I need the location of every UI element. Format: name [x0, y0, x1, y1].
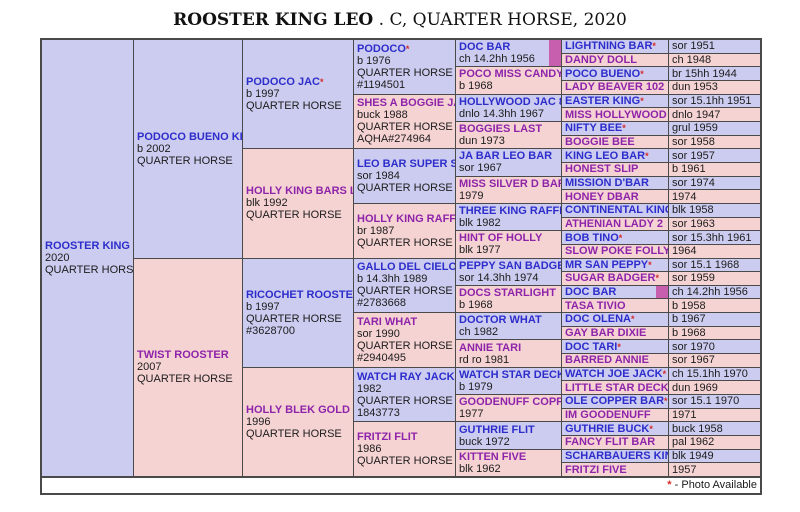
horse-detail: 1977	[459, 408, 559, 420]
horse-name-row: IM GOODENUFF	[565, 409, 666, 421]
pedigree-cell-gen6-date: blk 1958	[669, 204, 760, 217]
horse-date: ch 15.1hh 1970	[672, 368, 758, 380]
pedigree-cell-gen5: GUTHRIE FLITbuck 1972	[456, 422, 561, 448]
horse-name-row: ATHENIAN LADY 2	[565, 218, 666, 230]
footer-note-text: - Photo Available	[672, 479, 757, 491]
pedigree-cell-gen5: JA BAR LEO BARsor 1967	[456, 149, 561, 175]
horse-detail: 2020	[45, 252, 131, 264]
horse-name-row: MR SAN PEPPY*	[565, 259, 666, 271]
horse-name-link[interactable]: TARI WHAT	[357, 316, 417, 328]
horse-name-row: KITTEN FIVE	[459, 451, 559, 463]
pedigree-cell-gen5: GOODENUFF COPPER1977	[456, 395, 561, 421]
pedigree-cell-gen6-name: MR SAN PEPPY*	[562, 259, 668, 272]
horse-date: sor 1970	[672, 341, 758, 353]
horse-name-link[interactable]: DANDY DOLL	[565, 54, 637, 66]
pedigree-cell-gen4: TARI WHATsor 1990QUARTER HORSE#2940495	[354, 313, 455, 367]
pedigree-cell-gen6-date: 1974	[669, 190, 760, 203]
horse-name-link[interactable]: DOC TARI	[565, 341, 617, 353]
horse-name-row: THREE KING RAFFLES*	[459, 205, 559, 217]
horse-date: sor 15.1 1968	[672, 259, 758, 271]
horse-date: sor 1959	[672, 272, 758, 284]
photo-star: *	[406, 44, 410, 54]
horse-name-row: DOCS STARLIGHT	[459, 287, 559, 299]
horse-detail: QUARTER HORSE	[45, 264, 131, 276]
pedigree-cell-gen4: FRITZI FLIT1986QUARTER HORSE	[354, 422, 455, 476]
horse-detail: QUARTER HORSE	[246, 313, 351, 325]
horse-name-link[interactable]: KITTEN FIVE	[459, 451, 526, 463]
pedigree-cell-gen6-name: FANCY FLIT BAR	[562, 436, 668, 449]
photo-star: *	[640, 69, 644, 79]
horse-detail: dnlo 14.3hh 1967	[459, 108, 559, 120]
horse-name-link[interactable]: HOLLY KING RAFFLES	[357, 213, 455, 225]
horse-detail: b 1997	[246, 301, 351, 313]
horse-detail: #1194501	[357, 79, 453, 91]
page-title-name: ROOSTER KING LEO	[173, 10, 373, 30]
horse-name-link[interactable]: DOCS STARLIGHT	[459, 287, 556, 299]
horse-name-row: SHES A BOGGIE JAC	[357, 97, 453, 109]
pedigree-cell-gen6-name: WATCH JOE JACK*	[562, 368, 668, 381]
horse-date: b 1961	[672, 163, 758, 175]
horse-name-link[interactable]: THREE KING RAFFLES	[459, 205, 561, 217]
pedigree-cell-gen5: WATCH STAR DECKb 1979	[456, 368, 561, 394]
horse-detail: #2940495	[357, 352, 453, 364]
pedigree-cell-gen6-date: 1971	[669, 409, 760, 422]
horse-name-link[interactable]: LADY BEAVER 102	[565, 81, 664, 93]
horse-detail: buck 1972	[459, 436, 559, 448]
horse-detail: QUARTER HORSE	[137, 155, 240, 167]
pedigree-cell-gen3: HOLLY KING BARS LADYblk 1992QUARTER HORS…	[243, 149, 353, 257]
horse-name-link[interactable]: HINT OF HOLLY	[459, 232, 542, 244]
horse-name-row: POCO MISS CANDY	[459, 68, 559, 80]
pedigree-cell-gen6-name: GAY BAR DIXIE	[562, 327, 668, 340]
horse-detail: QUARTER HORSE	[357, 455, 453, 467]
horse-detail: blk 1992	[246, 197, 351, 209]
horse-name-link[interactable]: ATHENIAN LADY 2	[565, 218, 663, 230]
horse-date: sor 15.3hh 1961	[672, 232, 758, 244]
horse-name-link[interactable]: WATCH RAY JACK	[357, 371, 455, 383]
photo-star: *	[631, 314, 635, 324]
horse-name-link[interactable]: PEPPY SAN BADGER	[459, 260, 561, 272]
horse-name-row: GALLO DEL CIELO	[357, 261, 453, 273]
horse-detail: 1996	[246, 416, 351, 428]
horse-name-link[interactable]: BOGGIES LAST	[459, 123, 542, 135]
horse-name-link[interactable]: SLOW POKE FOLLY	[565, 245, 668, 257]
horse-name-link[interactable]: IM GOODENUFF	[565, 409, 651, 421]
horse-name-link[interactable]: PODOCO	[357, 43, 406, 55]
horse-name-link[interactable]: GUTHRIE BUCK	[565, 423, 649, 435]
horse-name-link[interactable]: KING LEO BAR	[565, 150, 645, 162]
horse-name-link[interactable]: HOLLYWOOD JAC 862	[459, 96, 561, 108]
horse-name-row: HOLLYWOOD JAC 862*	[459, 96, 559, 108]
horse-detail: QUARTER HORSE	[246, 209, 351, 221]
pedigree-grid: ROOSTER KING LEO2020QUARTER HORSEPODOCO …	[40, 38, 762, 478]
horse-name-link[interactable]: HOLLY BLEK GOLD	[246, 404, 350, 416]
photo-star: *	[652, 41, 656, 51]
horse-name-link[interactable]: TWIST ROOSTER	[137, 349, 229, 361]
pedigree-cell-gen5: HOLLYWOOD JAC 862*dnlo 14.3hh 1967	[456, 95, 561, 121]
horse-date: sor 1957	[672, 150, 758, 162]
horse-detail: blk 1977	[459, 244, 559, 256]
pedigree-cell-gen6-date: b 1961	[669, 163, 760, 176]
horse-name-row: RICOCHET ROOSTER	[246, 289, 351, 301]
horse-name-link[interactable]: OLE COPPER BAR	[565, 395, 664, 407]
horse-name-row: PODOCO BUENO KING*	[137, 131, 240, 143]
horse-name-link[interactable]: WATCH STAR DECK	[459, 369, 561, 381]
horse-name-link[interactable]: DOCTOR WHAT	[459, 314, 542, 326]
horse-name-link[interactable]: WATCH JOE JACK	[565, 368, 663, 380]
horse-detail: ch 1982	[459, 326, 559, 338]
horse-name-row: DOC BAR	[459, 41, 559, 53]
horse-name-link[interactable]: MISS SILVER D BAR	[459, 178, 561, 190]
pedigree-cell-gen6-date: 1964	[669, 245, 760, 258]
horse-name-row: WATCH JOE JACK*	[565, 368, 666, 380]
photo-star: *	[663, 369, 667, 379]
horse-detail: 1843773	[357, 407, 453, 419]
horse-name-row: KING LEO BAR*	[565, 150, 666, 162]
pedigree-cell-gen6-name: POCO BUENO*	[562, 67, 668, 80]
pedigree-cell-gen6-name: FRITZI FIVE	[562, 463, 668, 476]
horse-name-row: LEO BAR SUPER STAR	[357, 158, 453, 170]
pedigree-cell-gen3: RICOCHET ROOSTERb 1997QUARTER HORSE#3628…	[243, 259, 353, 367]
horse-name-link[interactable]: GALLO DEL CIELO	[357, 261, 455, 273]
horse-name-row: DANDY DOLL	[565, 54, 666, 66]
horse-name-row: DOCTOR WHAT	[459, 314, 559, 326]
pedigree-cell-gen6-name: TASA TIVIO	[562, 299, 668, 312]
pedigree-cell-gen6-date: ch 14.2hh 1956	[669, 286, 760, 299]
horse-name-link[interactable]: MISS HOLLYWOOD	[565, 109, 667, 121]
horse-name-link[interactable]: HOLLY KING BARS LADY	[246, 185, 353, 197]
pedigree-cell-gen6-date: sor 15.1 1968	[669, 259, 760, 272]
horse-detail: QUARTER HORSE	[357, 237, 453, 249]
horse-name-row: LIGHTNING BAR*	[565, 40, 666, 52]
horse-name-row: TWIST ROOSTER	[137, 349, 240, 361]
horse-detail: rd ro 1981	[459, 354, 559, 366]
horse-date: 1971	[672, 409, 758, 421]
horse-name-link[interactable]: TASA TIVIO	[565, 300, 626, 312]
pedigree-cell-gen6-name: OLE COPPER BAR*	[562, 395, 668, 408]
horse-detail: QUARTER HORSE	[357, 67, 453, 79]
horse-name-row: FRITZI FLIT	[357, 431, 453, 443]
horse-date: sor 1963	[672, 218, 758, 230]
pedigree-cell-gen2: TWIST ROOSTER2007QUARTER HORSE	[134, 259, 242, 477]
horse-name-link[interactable]: GAY BAR DIXIE	[565, 327, 646, 339]
horse-date: sor 15.1 1970	[672, 395, 758, 407]
horse-name-link[interactable]: BOB TINO	[565, 232, 619, 244]
horse-name-link[interactable]: EASTER KING	[565, 95, 640, 107]
horse-date: b 1968	[672, 327, 758, 339]
pedigree-cell-gen6-date: sor 1958	[669, 136, 760, 149]
pedigree-table: ROOSTER KING LEO2020QUARTER HORSEPODOCO …	[40, 38, 762, 495]
horse-name-link[interactable]: JA BAR LEO BAR	[459, 150, 552, 162]
horse-name-row: TASA TIVIO	[565, 300, 666, 312]
horse-name-row: GUTHRIE BUCK*	[565, 423, 666, 435]
horse-detail: QUARTER HORSE	[137, 373, 240, 385]
pedigree-cell-gen6-name: BARRED ANNIE	[562, 354, 668, 367]
horse-detail: sor 14.3hh 1974	[459, 272, 559, 284]
pedigree-cell-gen6-name: NIFTY BEE*	[562, 122, 668, 135]
pedigree-cell-gen6-date: ch 15.1hh 1970	[669, 368, 760, 381]
pedigree-cell-gen5: MISS SILVER D BAR1979	[456, 177, 561, 203]
horse-name-link[interactable]: GUTHRIE FLIT	[459, 424, 535, 436]
horse-name-row: DOC OLENA*	[565, 313, 666, 325]
pedigree-cell-gen4: LEO BAR SUPER STARsor 1984QUARTER HORSE	[354, 149, 455, 203]
horse-name-link[interactable]: MISSION D'BAR	[565, 177, 649, 189]
horse-detail: b 2002	[137, 143, 240, 155]
horse-name-row: JA BAR LEO BAR	[459, 150, 559, 162]
pedigree-cell-gen6-date: ch 1948	[669, 54, 760, 67]
photo-star: *	[664, 396, 668, 406]
horse-name-link[interactable]: HONEY DBAR	[565, 191, 639, 203]
horse-detail: 1979	[459, 190, 559, 202]
horse-detail: buck 1988	[357, 109, 453, 121]
horse-name-link[interactable]: DOC BAR	[565, 286, 616, 298]
horse-name-link[interactable]: ANNIE TARI	[459, 342, 521, 354]
horse-name-link[interactable]: PODOCO JAC	[246, 76, 320, 88]
horse-name-row: DOC TARI*	[565, 341, 666, 353]
horse-name-link[interactable]: SHES A BOGGIE JAC	[357, 97, 455, 109]
pedigree-cell-gen4: WATCH RAY JACK1982QUARTER HORSE1843773	[354, 368, 455, 422]
pedigree-cell-gen6-name: MISS HOLLYWOOD	[562, 108, 668, 121]
horse-name-row: PODOCO JAC*	[246, 76, 351, 88]
horse-name-link[interactable]: MR SAN PEPPY	[565, 259, 648, 271]
horse-detail: QUARTER HORSE	[357, 395, 453, 407]
horse-name-row: PEPPY SAN BADGER*	[459, 260, 559, 272]
horse-date: dun 1953	[672, 81, 758, 93]
horse-name-link[interactable]: PODOCO BUENO KING	[137, 131, 242, 143]
pedigree-cell-gen5: DOC BARch 14.2hh 1956	[456, 40, 561, 66]
horse-detail: ch 14.2hh 1956	[459, 53, 559, 65]
horse-name-row: WATCH STAR DECK	[459, 369, 559, 381]
horse-date: blk 1949	[672, 450, 758, 462]
pedigree-cell-gen4: SHES A BOGGIE JACbuck 1988QUARTER HORSEA…	[354, 95, 455, 149]
pedigree-cell-gen6-date: b 1958	[669, 299, 760, 312]
pedigree-cell-gen5: POCO MISS CANDYb 1968	[456, 67, 561, 93]
horse-name-link[interactable]: FRITZI FIVE	[565, 464, 627, 476]
pedigree-cell-gen6-name: DOC TARI*	[562, 340, 668, 353]
horse-name-link[interactable]: LIGHTNING BAR	[565, 40, 652, 52]
horse-name-row: GUTHRIE FLIT	[459, 424, 559, 436]
pedigree-cell-gen6-date: pal 1962	[669, 436, 760, 449]
pedigree-cell-gen6-name: SCHARBAUERS KING	[562, 450, 668, 463]
horse-name-link[interactable]: DOC OLENA	[565, 313, 631, 325]
pedigree-cell-gen6-date: sor 1951	[669, 40, 760, 53]
pedigree-cell-gen6-date: sor 1959	[669, 272, 760, 285]
horse-name-row: CONTINENTAL KING*	[565, 204, 666, 216]
pedigree-cell-gen6-name: KING LEO BAR*	[562, 149, 668, 162]
horse-name-link[interactable]: DOC BAR	[459, 41, 510, 53]
horse-name-row: SCHARBAUERS KING	[565, 450, 666, 462]
horse-date: sor 1951	[672, 40, 758, 52]
photo-star: *	[655, 273, 659, 283]
horse-name-row: ANNIE TARI	[459, 342, 559, 354]
horse-date: sor 1974	[672, 177, 758, 189]
pedigree-cell-gen2: PODOCO BUENO KING*b 2002QUARTER HORSE	[134, 40, 242, 258]
horse-detail: b 1976	[357, 55, 453, 67]
pedigree-cell-gen1: ROOSTER KING LEO2020QUARTER HORSE	[42, 40, 133, 476]
photo-star: *	[648, 260, 652, 270]
horse-name-link[interactable]: SCHARBAUERS KING	[565, 450, 668, 462]
pedigree-cell-gen3: PODOCO JAC*b 1997QUARTER HORSE	[243, 40, 353, 148]
horse-name-row: WATCH RAY JACK	[357, 371, 453, 383]
pedigree-cell-gen3: HOLLY BLEK GOLD1996QUARTER HORSE	[243, 368, 353, 476]
page-title: ROOSTER KING LEO . C, QUARTER HORSE, 202…	[0, 10, 800, 30]
horse-name-row: SUGAR BADGER*	[565, 272, 666, 284]
horse-name-row: PODOCO*	[357, 43, 453, 55]
horse-name-row: BARRED ANNIE	[565, 354, 666, 366]
horse-name-row: HINT OF HOLLY	[459, 232, 559, 244]
horse-name-link[interactable]: NIFTY BEE	[565, 122, 622, 134]
horse-name-row: BOGGIE BEE	[565, 136, 666, 148]
pedigree-cell-gen6-name: SLOW POKE FOLLY	[562, 245, 668, 258]
horse-name-link[interactable]: BOGGIE BEE	[565, 136, 635, 148]
pedigree-cell-gen6-name: BOB TINO*	[562, 231, 668, 244]
photo-star: *	[619, 233, 623, 243]
pedigree-cell-gen4: HOLLY KING RAFFLESbr 1987QUARTER HORSE	[354, 204, 455, 258]
pedigree-cell-gen6-date: br 15hh 1944	[669, 67, 760, 80]
pedigree-cell-gen6-date: b 1967	[669, 313, 760, 326]
photo-star: *	[622, 123, 626, 133]
pedigree-cell-gen4: GALLO DEL CIELOb 14.3hh 1989QUARTER HORS…	[354, 259, 455, 313]
pedigree-cell-gen5: ANNIE TARIrd ro 1981	[456, 340, 561, 366]
horse-name-link[interactable]: FRITZI FLIT	[357, 431, 417, 443]
photo-indicator	[656, 286, 668, 299]
footer-note: * - Photo Available	[40, 478, 762, 495]
horse-name-link[interactable]: SUGAR BADGER	[565, 272, 655, 284]
pedigree-cell-gen6-date: b 1968	[669, 327, 760, 340]
horse-name-row: HOLLY KING BARS LADY	[246, 185, 351, 197]
horse-name-row: SLOW POKE FOLLY	[565, 245, 666, 257]
pedigree-cell-gen5: BOGGIES LASTdun 1973	[456, 122, 561, 148]
pedigree-cell-gen6-date: dun 1969	[669, 381, 760, 394]
horse-detail: 2007	[137, 361, 240, 373]
pedigree-cell-gen5: DOCTOR WHATch 1982	[456, 313, 561, 339]
pedigree-cell-gen6-date: grul 1959	[669, 122, 760, 135]
horse-date: buck 1958	[672, 423, 758, 435]
horse-detail: b 1979	[459, 381, 559, 393]
horse-detail: QUARTER HORSE	[357, 340, 453, 352]
horse-detail: blk 1962	[459, 463, 559, 475]
horse-name-link[interactable]: LEO BAR SUPER STAR	[357, 158, 455, 170]
pedigree-cell-gen5: HINT OF HOLLYblk 1977	[456, 231, 561, 257]
pedigree-cell-gen6-date: sor 1974	[669, 177, 760, 190]
pedigree-cell-gen6-name: DOC BAR	[562, 286, 668, 299]
pedigree-cell-gen6-date: blk 1949	[669, 450, 760, 463]
horse-name-link[interactable]: ROOSTER KING LEO	[45, 240, 133, 252]
photo-star: *	[320, 77, 324, 87]
pedigree-cell-gen6-name: SUGAR BADGER*	[562, 272, 668, 285]
pedigree-cell-gen5: THREE KING RAFFLES*blk 1982	[456, 204, 561, 230]
horse-detail: sor 1990	[357, 328, 453, 340]
horse-date: b 1958	[672, 300, 758, 312]
horse-name-row: FRITZI FIVE	[565, 464, 666, 476]
horse-detail: AQHA#274964	[357, 133, 453, 145]
horse-detail: QUARTER HORSE	[246, 428, 351, 440]
horse-name-row: DOC BAR	[565, 286, 666, 298]
horse-name-row: HOLLY KING RAFFLES	[357, 213, 453, 225]
pedigree-cell-gen6-date: sor 1970	[669, 340, 760, 353]
horse-name-row: BOGGIES LAST	[459, 123, 559, 135]
horse-name-link[interactable]: FANCY FLIT BAR	[565, 436, 655, 448]
horse-name-row: MISS SILVER D BAR	[459, 178, 559, 190]
photo-star: *	[640, 96, 644, 106]
horse-name-row: HOLLY BLEK GOLD	[246, 404, 351, 416]
pedigree-cell-gen6-name: BOGGIE BEE	[562, 136, 668, 149]
pedigree-cell-gen6-name: LIGHTNING BAR*	[562, 40, 668, 53]
horse-name-link[interactable]: BARRED ANNIE	[565, 354, 649, 366]
horse-date: b 1967	[672, 313, 758, 325]
horse-name-link[interactable]: GOODENUFF COPPER	[459, 396, 561, 408]
pedigree-cell-gen6-name: GUTHRIE BUCK*	[562, 422, 668, 435]
horse-name-link[interactable]: POCO MISS CANDY	[459, 68, 561, 80]
horse-detail: QUARTER HORSE	[246, 100, 351, 112]
page-title-suffix: . C, QUARTER HORSE, 2020	[373, 10, 627, 30]
horse-date: sor 1958	[672, 136, 758, 148]
pedigree-cell-gen6-name: CONTINENTAL KING*	[562, 204, 668, 217]
horse-name-row: OLE COPPER BAR*	[565, 395, 666, 407]
pedigree-cell-gen6-date: sor 15.1 1970	[669, 395, 760, 408]
horse-name-link[interactable]: HONEST SLIP	[565, 163, 638, 175]
horse-name-row: MISS HOLLYWOOD	[565, 109, 666, 121]
horse-date: blk 1958	[672, 204, 758, 216]
horse-name-row: GOODENUFF COPPER	[459, 396, 559, 408]
pedigree-cell-gen6-date: dnlo 1947	[669, 108, 760, 121]
pedigree-cell-gen4: PODOCO*b 1976QUARTER HORSE#1194501	[354, 40, 455, 94]
pedigree-cell-gen6-name: ATHENIAN LADY 2	[562, 218, 668, 231]
horse-date: ch 1948	[672, 54, 758, 66]
horse-detail: QUARTER HORSE	[357, 285, 453, 297]
pedigree-cell-gen6-name: DANDY DOLL	[562, 54, 668, 67]
horse-name-row: FANCY FLIT BAR	[565, 436, 666, 448]
horse-name-link[interactable]: LITTLE STAR DECK	[565, 382, 668, 394]
horse-detail: dun 1973	[459, 135, 559, 147]
horse-name-row: GAY BAR DIXIE	[565, 327, 666, 339]
horse-detail: #2783668	[357, 297, 453, 309]
pedigree-cell-gen5: PEPPY SAN BADGER*sor 14.3hh 1974	[456, 259, 561, 285]
pedigree-cell-gen6-name: HONEST SLIP	[562, 163, 668, 176]
horse-detail: b 14.3hh 1989	[357, 273, 453, 285]
horse-name-row: LITTLE STAR DECK	[565, 382, 666, 394]
pedigree-cell-gen5: DOCS STARLIGHTb 1968	[456, 286, 561, 312]
horse-date: grul 1959	[672, 122, 758, 134]
photo-star: *	[645, 151, 649, 161]
horse-name-row: POCO BUENO*	[565, 68, 666, 80]
pedigree-cell-gen6-name: HONEY DBAR	[562, 190, 668, 203]
photo-star: *	[617, 342, 621, 352]
pedigree-cell-gen6-date: 1957	[669, 463, 760, 476]
horse-date: sor 15.1hh 1951	[672, 95, 758, 107]
horse-name-row: TARI WHAT	[357, 316, 453, 328]
horse-name-link[interactable]: POCO BUENO	[565, 68, 640, 80]
pedigree-cell-gen6-date: sor 1957	[669, 149, 760, 162]
horse-date: pal 1962	[672, 436, 758, 448]
horse-detail: br 1987	[357, 225, 453, 237]
horse-name-link[interactable]: RICOCHET ROOSTER	[246, 289, 353, 301]
horse-name-row: HONEST SLIP	[565, 163, 666, 175]
photo-star: *	[649, 424, 653, 434]
horse-date: ch 14.2hh 1956	[672, 286, 758, 298]
horse-name-link[interactable]: CONTINENTAL KING	[565, 204, 668, 216]
pedigree-cell-gen6-name: LADY BEAVER 102	[562, 81, 668, 94]
pedigree-cell-gen6-date: sor 1963	[669, 218, 760, 231]
pedigree-cell-gen6-date: sor 15.3hh 1961	[669, 231, 760, 244]
horse-detail: sor 1967	[459, 162, 559, 174]
horse-detail: 1986	[357, 443, 453, 455]
horse-detail: sor 1984	[357, 170, 453, 182]
horse-detail: b 1997	[246, 88, 351, 100]
horse-name-row: ROOSTER KING LEO	[45, 240, 131, 252]
horse-detail: b 1968	[459, 80, 559, 92]
pedigree-cell-gen6-date: sor 1967	[669, 354, 760, 367]
